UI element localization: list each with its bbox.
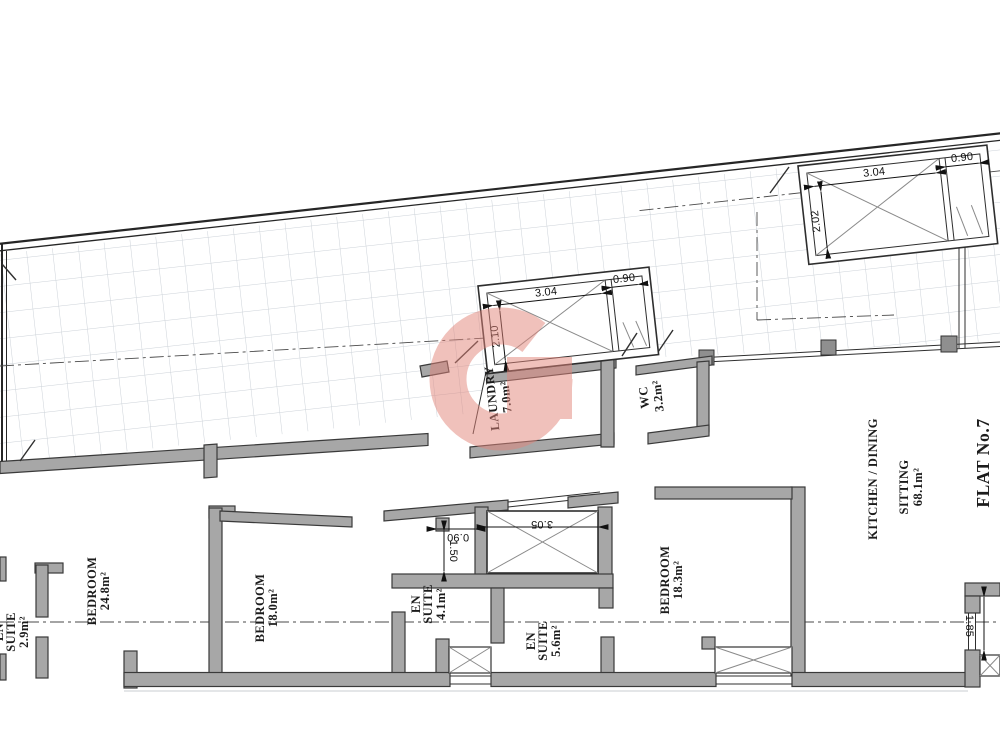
wc-right-wall — [697, 361, 709, 433]
svg-text:SUITE: SUITE — [421, 584, 435, 624]
svg-text:18.3m²: 18.3m² — [671, 561, 685, 599]
edge-wall — [0, 654, 6, 680]
svg-text:BEDROOM: BEDROOM — [658, 546, 672, 615]
dim-window-right: 1.85 — [963, 615, 975, 637]
lower-shaft-right-wall — [598, 507, 612, 575]
room-label-kitchen: KITCHEN / DINING — [866, 418, 880, 540]
dim-lower-shaft-depth: 1.50 — [447, 540, 459, 562]
svg-text:SUITE: SUITE — [536, 621, 550, 661]
svg-text:68.1m²: 68.1m² — [911, 468, 925, 506]
dim-tr-shaft-depth: 2.02 — [809, 210, 823, 233]
bedroom3-top-wall — [655, 487, 792, 499]
top-right-shaft: 3.04 0.90 2.02 — [798, 145, 998, 264]
dim-tr-shaft-width: 3.04 — [862, 165, 885, 179]
bottom-wall — [792, 673, 968, 687]
bedroom3-right-wall — [791, 487, 805, 676]
floor-plan-drawing: 3.05 0.90 1.50 1.85 3.04 0.90 2.10 — [0, 0, 1000, 750]
column — [941, 336, 957, 352]
room-label-ensuite1: EN SUITE 2.9m² — [0, 612, 31, 652]
wall-stub — [204, 444, 217, 478]
svg-text:BEDROOM: BEDROOM — [253, 574, 267, 643]
ensuite2-left-wall — [392, 612, 405, 676]
wall-stub — [599, 588, 613, 608]
svg-text:FLAT No.7: FLAT No.7 — [973, 418, 993, 507]
svg-text:18.0m²: 18.0m² — [266, 589, 280, 627]
svg-text:2.9m²: 2.9m² — [17, 616, 31, 648]
dim-central-shaft-width: 3.04 — [534, 285, 557, 299]
corner-wall — [965, 583, 1000, 596]
dim-central-shaft-sub: 0.90 — [612, 272, 635, 286]
flat-number-label: FLAT No.7 — [973, 418, 993, 507]
watermark-crossbar — [507, 357, 572, 419]
svg-text:BEDROOM: BEDROOM — [85, 557, 99, 626]
ensuite1-wall-upper — [36, 565, 48, 617]
laundry-right-wall — [601, 356, 614, 448]
wall-stub — [702, 637, 715, 649]
svg-text:KITCHEN / DINING: KITCHEN / DINING — [866, 418, 880, 540]
svg-text:5.6m²: 5.6m² — [549, 625, 563, 657]
ensuite1-wall-lower — [36, 637, 48, 678]
column — [821, 340, 836, 355]
edge-wall — [0, 557, 6, 581]
dim-tr-shaft-sub: 0.90 — [950, 151, 973, 165]
svg-text:SITTING: SITTING — [897, 460, 911, 515]
lower-shaft-left-wall — [475, 507, 488, 577]
svg-text:SUITE: SUITE — [4, 612, 18, 652]
dim-lower-shaft-width: 3.05 — [531, 518, 553, 530]
ensuite-divider-wall — [491, 588, 504, 643]
wall-stub — [436, 639, 449, 676]
wall-stub — [601, 637, 614, 676]
room-label-sitting: SITTING 68.1m² — [897, 460, 925, 515]
bottom-wall — [124, 673, 450, 687]
svg-text:24.8m²: 24.8m² — [98, 572, 112, 610]
corner-wall — [965, 650, 980, 687]
svg-text:4.1m²: 4.1m² — [434, 588, 448, 620]
corner-wall — [965, 596, 980, 613]
floor-plan-page: 3.05 0.90 1.50 1.85 3.04 0.90 2.10 — [0, 0, 1000, 750]
bottom-wall — [491, 673, 716, 687]
bedroom-divider-wall — [209, 508, 222, 673]
